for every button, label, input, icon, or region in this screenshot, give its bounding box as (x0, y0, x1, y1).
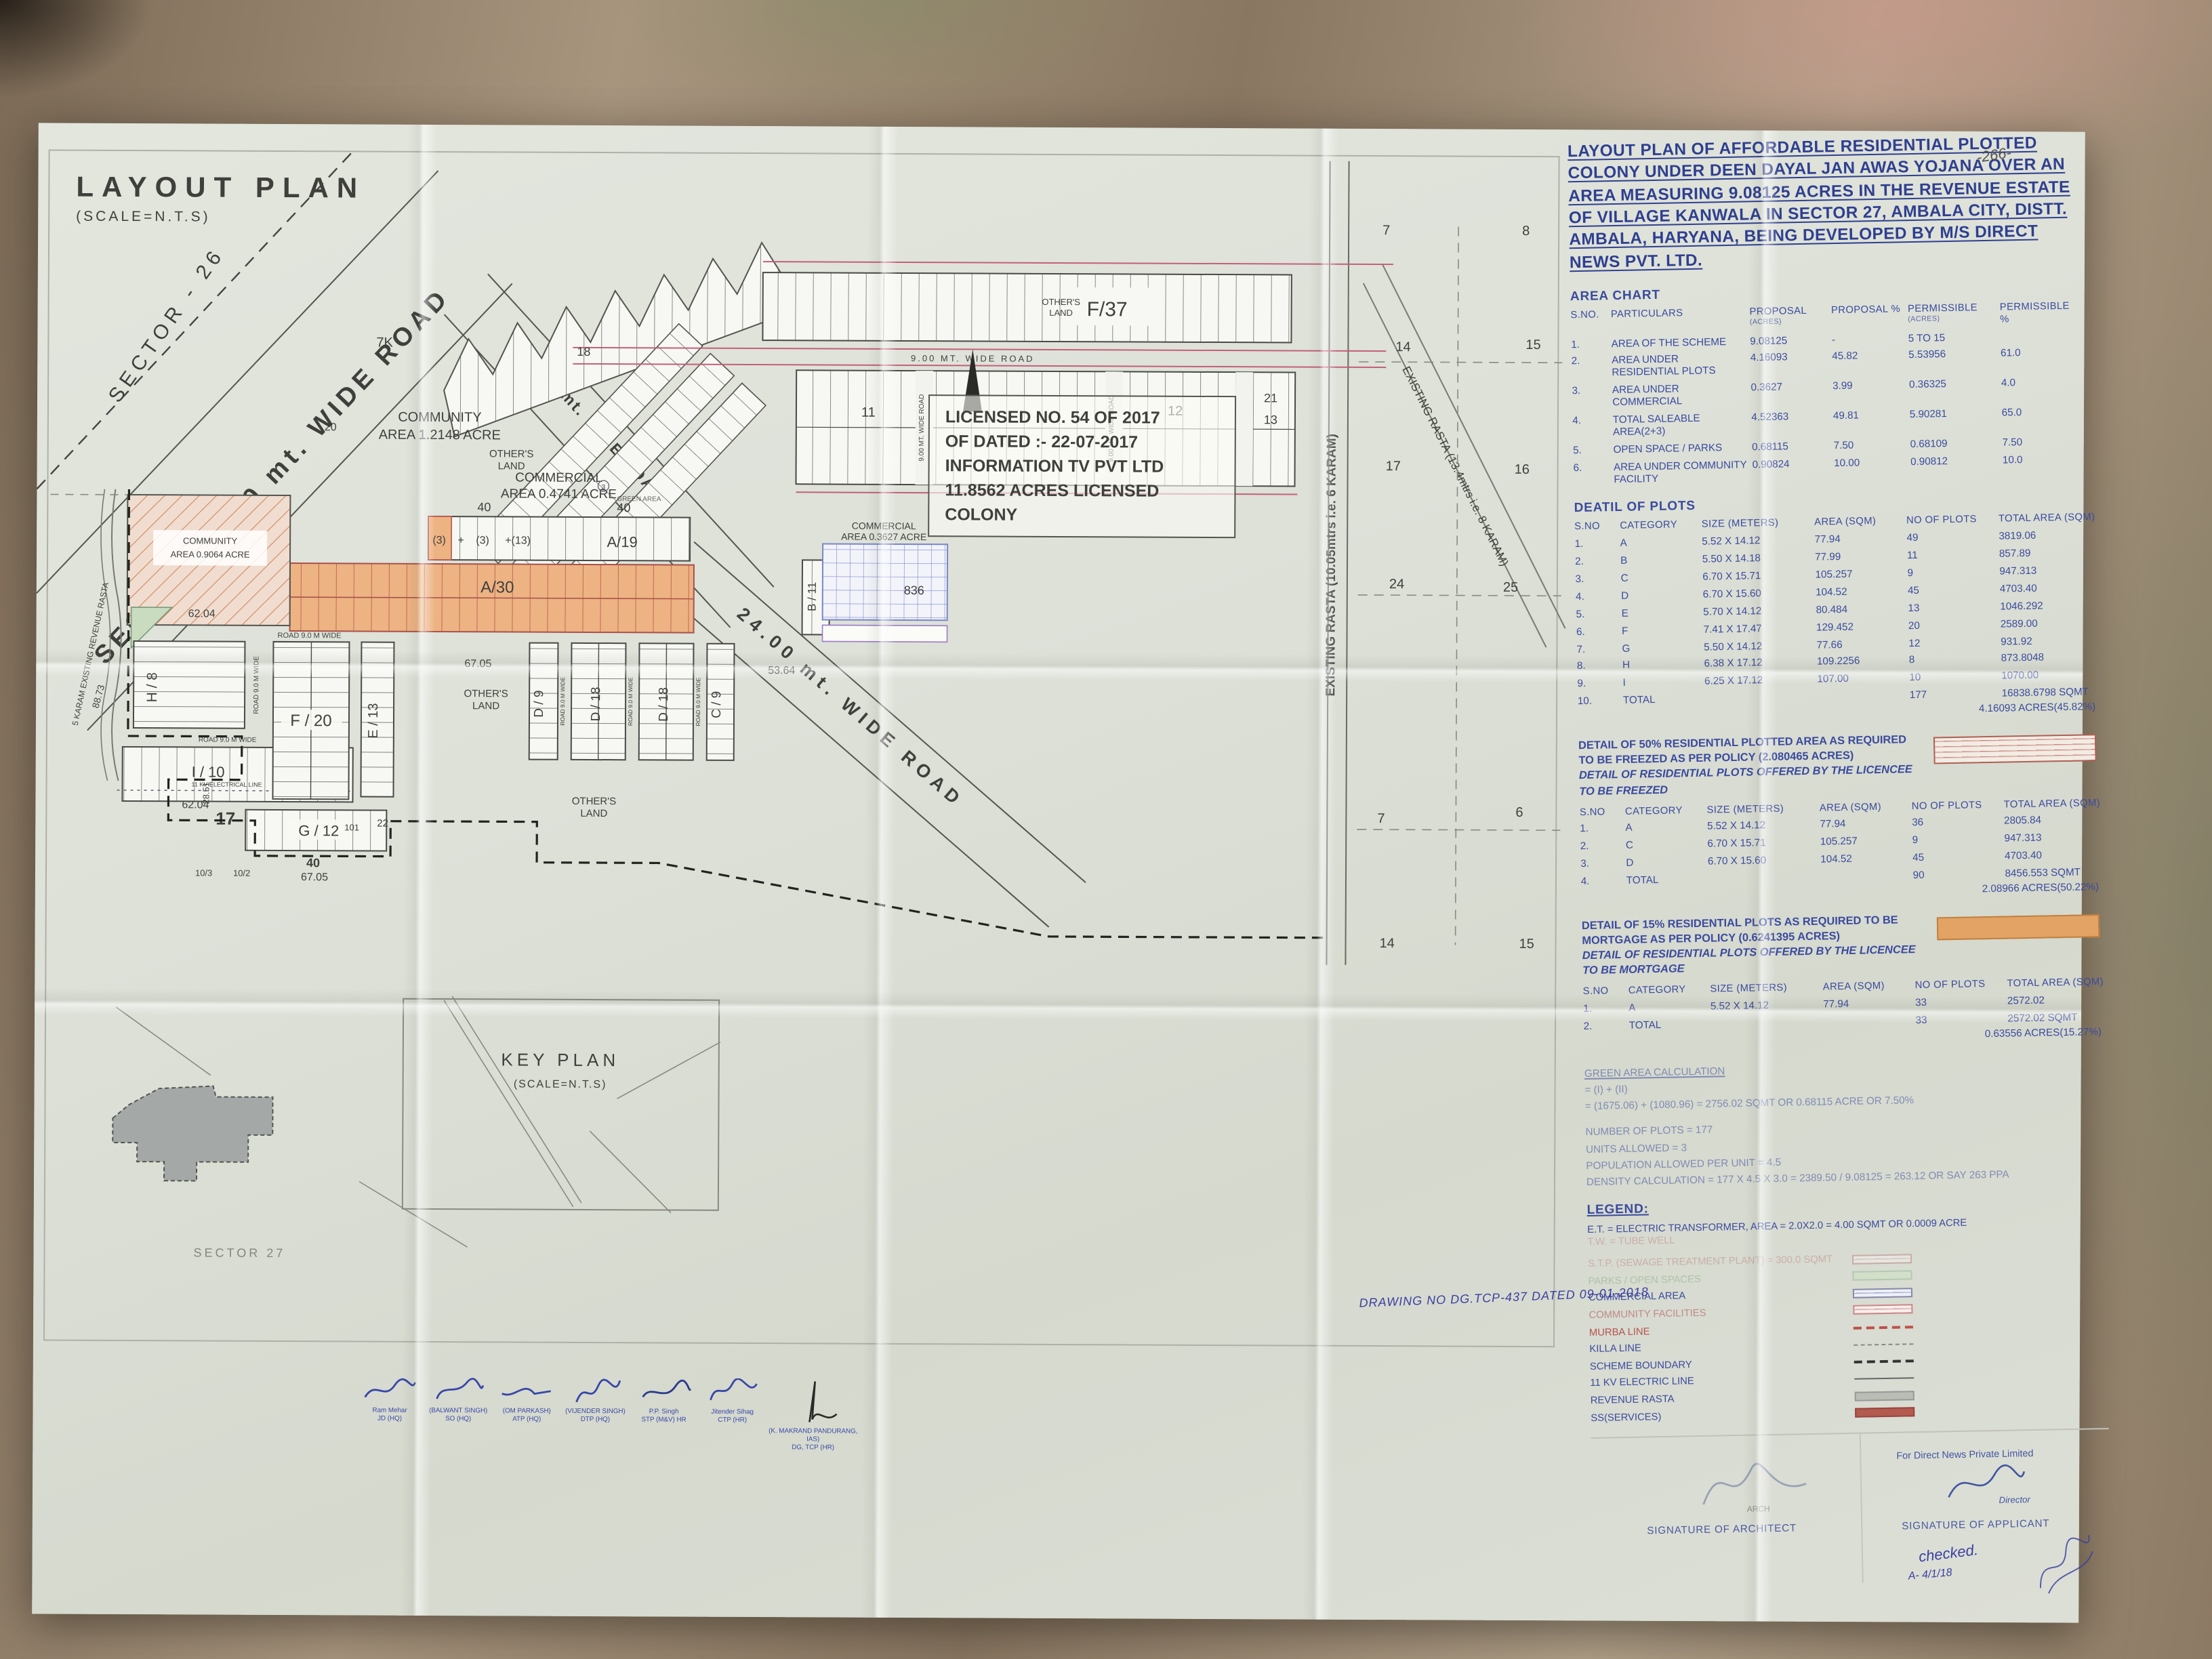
block-f37 (762, 272, 1291, 342)
services-swatch (1855, 1408, 1914, 1418)
stamp-dept: CTP (HR) (698, 1418, 766, 1427)
cell: C (1621, 571, 1699, 585)
stamp-name: (BALWANT SINGH) (424, 1408, 493, 1417)
cell: 36 (1912, 816, 2000, 829)
svg-text:21: 21 (1264, 391, 1277, 405)
mortgage-orange-swatch (1937, 914, 2100, 940)
cell: 4703.40 (2005, 849, 2103, 863)
block-f37-label: F/37 (1087, 298, 1128, 321)
extra-scribble (2017, 1522, 2113, 1604)
stamp: (BALWANT SINGH) SO (HQ) (424, 1377, 493, 1452)
stamp-signature (497, 1377, 556, 1404)
cell: 20 (1908, 619, 1996, 632)
date-note: A- 4/1/18 (1908, 1566, 1952, 1582)
cell: 77.94 (1820, 818, 1908, 832)
col-header: PROPOSAL % (1831, 304, 1904, 316)
cell: AREA UNDER COMMUNITY FACILITY (1614, 460, 1748, 487)
block-d9-label: D / 9 (532, 691, 546, 718)
cell: 1. (1574, 538, 1616, 551)
dim: 17 (216, 808, 235, 829)
legend-list: S.T.P. (SEWAGE TREATMENT PLANT) = 300.0 … (1588, 1249, 2108, 1424)
stamp: Jitender Sihag CTP (HR) (698, 1378, 767, 1454)
cell: TOTAL SALEABLE AREA(2+3) (1613, 413, 1748, 439)
key-plan-scale: (SCALE=N.T.S) (514, 1078, 607, 1090)
others-land-label: OTHER'S (1042, 297, 1080, 307)
mortgage-section: DETAIL OF 15% RESIDENTIAL PLOTS AS REQUI… (1582, 909, 2100, 978)
cell: 1. (1571, 338, 1607, 351)
svg-text:16: 16 (1515, 462, 1530, 477)
cell: 5.90281 (1910, 408, 1998, 422)
legend-item: KILLA LINE (1589, 1334, 2107, 1355)
legend-label: KILLA LINE (1589, 1339, 1853, 1355)
stamp-dept: DTP (HQ) (561, 1417, 630, 1426)
col-header: NO OF PLOTS (1915, 979, 2003, 992)
col-header: NO OF PLOTS (1912, 799, 2000, 813)
cell: 5.53956 (1908, 349, 1996, 363)
parks-swatch (1852, 1271, 1912, 1282)
block-b11-label: B / 11 (806, 582, 819, 611)
block-g12-label: G / 12 (298, 822, 339, 839)
cell: C (1626, 839, 1704, 853)
stamp-signature (634, 1378, 694, 1405)
stamp-signature (703, 1378, 762, 1406)
svg-text:INFORMATION TV PVT LTD: INFORMATION TV PVT LTD (945, 456, 1164, 476)
dim: 40 (306, 856, 320, 869)
stamp-name: Jitender Sihag (698, 1410, 766, 1418)
stamp-dept: ATP (HQ) (493, 1417, 561, 1426)
legend-item: SS(SERVICES) (1591, 1403, 2108, 1423)
community-swatch (1853, 1305, 1912, 1315)
col-header: CATEGORY (1620, 519, 1698, 533)
num-836: 836 (904, 583, 924, 597)
cell: 947.313 (2004, 832, 2102, 846)
cell: B (1620, 554, 1698, 567)
dim: 28.51 (201, 782, 211, 804)
legend-label: COMMUNITY FACILITIES (1589, 1305, 1853, 1321)
cell: 2805.84 (2004, 815, 2102, 829)
cell: 4. (1572, 415, 1609, 428)
cell: 2. (1584, 1021, 1625, 1033)
col-header: NO OF PLOTS (1906, 514, 1994, 527)
parcel-num: 18 (577, 345, 590, 359)
road-red-line (573, 364, 1386, 367)
cell: 3. (1575, 573, 1616, 586)
architect-label: SIGNATURE OF ARCHITECT (1647, 1521, 1797, 1536)
cell: 105.257 (1816, 568, 1904, 581)
director-label: Director (1999, 1496, 2030, 1506)
legend-label: REVENUE RASTA (1591, 1391, 1855, 1406)
applicant-company: For Direct News Private Limited (1896, 1447, 2033, 1462)
stamp-dept: STP (M&V) HR (630, 1418, 698, 1427)
key-plan-site-shape (112, 1086, 273, 1181)
legend-item: 11 KV ELECTRIC LINE (1590, 1369, 2108, 1389)
cell: AREA OF THE SCHEME (1612, 336, 1746, 351)
legend-label: SCHEME BOUNDARY (1590, 1357, 1854, 1372)
electric-swatch (1854, 1377, 1914, 1380)
block-d18-label: D / 18 (657, 687, 671, 722)
dim: 10/3 (195, 867, 212, 878)
col-header: TOTAL AREA (SQM) (2007, 977, 2105, 991)
killa-line-swatch (1853, 1343, 1913, 1346)
svg-text:13: 13 (1264, 413, 1277, 426)
freeze-section: DETAIL OF 50% RESIDENTIAL PLOTTED AREA A… (1578, 729, 2097, 798)
col-header: S.NO (1580, 806, 1621, 819)
stamp-name: (OM PARKASH) (493, 1409, 561, 1418)
road-label: ROAD 9.0 M WIDE (277, 632, 341, 640)
cell: 3. (1572, 386, 1608, 398)
dim: 22 (377, 818, 388, 829)
rasta-8karam-label: EXISTING RASTA (13.4mtrs i.e. 8 KARAM) (1399, 365, 1511, 569)
cell: 857.89 (1999, 547, 2097, 561)
cell: 10.0 (2003, 454, 2081, 468)
stamp: (VIJENDER SINGH) DTP (HQ) (561, 1378, 630, 1453)
cell: 49 (1906, 531, 1994, 544)
cell: 8456.553 SQMT (2005, 867, 2103, 881)
block-c9-label: C / 9 (710, 691, 724, 718)
cell: 4703.40 (2000, 581, 2098, 596)
checked-note: checked. (1918, 1542, 1979, 1566)
svg-text:7: 7 (1382, 223, 1390, 238)
legend-item: SCHEME BOUNDARY (1590, 1352, 2108, 1372)
cell: 7. (1576, 643, 1618, 656)
legend-label: 11 KV ELECTRIC LINE (1590, 1374, 1854, 1389)
plan-scale: (SCALE=N.T.S) (76, 209, 211, 225)
title-line: NEWS PVT. LTD. (1570, 250, 1703, 272)
cell: 7.50 (1834, 440, 1906, 453)
block-a19 (428, 516, 690, 561)
cell: 2589.00 (2001, 617, 2099, 631)
legend-heading: LEGEND: (1586, 1193, 2104, 1218)
stamp-name: P.P. Singh (630, 1409, 698, 1418)
col-header: PERMISSIBLE(ACRES) (1908, 302, 1996, 325)
col-header: TOTAL AREA (SQM) (1999, 512, 2097, 525)
road-gap (1235, 372, 1253, 486)
legend-item: MURBA LINE (1589, 1317, 2107, 1338)
svg-text:15: 15 (1519, 937, 1534, 951)
dim: 101 (344, 822, 359, 832)
cell: 10. (1578, 696, 1619, 709)
cell: F (1622, 624, 1700, 638)
svg-text:14: 14 (1395, 340, 1410, 354)
cell: 12 (1908, 636, 1996, 650)
cell: 2. (1575, 556, 1616, 569)
col-header: CATEGORY (1625, 804, 1703, 818)
cell: A (1625, 821, 1703, 835)
cell: AREA UNDER COMMERCIAL (1612, 383, 1747, 409)
col-header: PERMISSIBLE % (2000, 301, 2078, 326)
community-area2-label: AREA 0.9064 ACRE (170, 549, 249, 560)
stp-swatch (1852, 1253, 1912, 1264)
others-land-label: LAND (1049, 308, 1073, 318)
block-d18-label: D / 18 (589, 687, 603, 722)
block-f20-label: F / 20 (290, 712, 331, 730)
cell: 13 (1908, 601, 1996, 615)
title-line: AMBALA, HARYANA, BEING DEVELOPED BY M/S … (1569, 222, 2038, 249)
key-plan-sector27: SECTOR 27 (193, 1246, 285, 1260)
cell: 947.313 (1999, 564, 2097, 578)
cell: 61.0 (2001, 347, 2078, 361)
cell-label: (3) (476, 535, 489, 546)
cell: 45 (1912, 851, 2001, 865)
cell: 3. (1580, 858, 1622, 871)
stamp-dept: SO (HQ) (424, 1416, 493, 1425)
cell: 5. (1573, 445, 1610, 458)
cell: TOTAL (1626, 874, 1704, 888)
cell (2000, 330, 2078, 331)
block-e13-label: E / 13 (366, 703, 381, 738)
cell: 6. (1573, 463, 1610, 476)
cell: 177 (1910, 689, 1998, 703)
photo-stage: LAYOUT PLAN (SCALE=N.T.S) SECTOR - 26 SE… (0, 0, 2212, 1659)
key-plan-box (403, 999, 719, 1210)
commercial-area-label: COMMERCIAL (515, 470, 602, 485)
cell: 0.36325 (1909, 378, 1997, 392)
stamp-name: (K. MAKRAND PANDURANG, IAS) (766, 1429, 859, 1446)
cell: 1046.292 (2000, 599, 2098, 613)
cell: 16838.6798 SQMT (2002, 687, 2100, 701)
cell: 104.52 (1820, 853, 1908, 867)
cell: 0.90812 (1910, 455, 1999, 469)
layout-plan-sheet: LAYOUT PLAN (SCALE=N.T.S) SECTOR - 26 SE… (32, 123, 2085, 1622)
col-header: S.NO. (1570, 309, 1607, 321)
cell: 1. (1580, 823, 1621, 836)
cell-label: + (457, 535, 464, 546)
others-land-label: LAND (472, 700, 499, 712)
cell: 77.99 (1815, 550, 1903, 564)
col-header: PARTICULARS (1611, 307, 1746, 321)
block-a19-label: A/19 (607, 533, 637, 550)
dim: 67.05 (301, 872, 328, 883)
signature-area: ARCH For Direct News Private Limited Dir… (1591, 1428, 2112, 1642)
road-label: ROAD 9.0 M WIDE (199, 736, 257, 743)
legend-item: S.T.P. (SEWAGE TREATMENT PLANT) = 300.0 … (1588, 1249, 2106, 1269)
site-plan-drawing: LAYOUT PLAN (SCALE=N.T.S) SECTOR - 26 SE… (33, 139, 1570, 1366)
cell: 5. (1576, 608, 1617, 621)
parcel-num: 20 (325, 422, 337, 433)
road-label: ROAD 9.0 M WIDE (559, 677, 566, 726)
col-header: AREA (SQM) (1814, 515, 1902, 529)
rasta-swatch (1855, 1391, 1914, 1401)
dim: 10/2 (233, 868, 250, 878)
dim: 62.04 (188, 608, 216, 619)
svg-text:17: 17 (1386, 459, 1401, 474)
cell: 9 (1912, 834, 2001, 847)
green-area-marker-num: 3 (602, 484, 606, 491)
block-h8-label: H / 8 (144, 672, 160, 702)
cell: 4. (1581, 876, 1622, 888)
svg-text:8: 8 (1522, 224, 1530, 239)
rasta-8karam-line (1381, 264, 1567, 628)
parcel-num: 7K (376, 335, 393, 350)
cell: - (1832, 333, 1904, 346)
cell: 4.0 (2001, 377, 2079, 390)
col-header: AREA (SQM) (1823, 981, 1911, 994)
cell: OPEN SPACE / PARKS (1613, 443, 1748, 457)
community-area2-label: COMMUNITY (183, 535, 238, 546)
cell: 6. (1576, 626, 1618, 638)
cell: 5 TO 15 (1908, 331, 1996, 345)
svg-text:15: 15 (1525, 337, 1540, 352)
svg-text:LICENSED NO. 54 OF 2017: LICENSED NO. 54 OF 2017 (945, 407, 1160, 427)
svg-text:COLONY: COLONY (945, 505, 1017, 524)
col-header: S.NO (1574, 520, 1616, 533)
others-land-label: OTHER'S (489, 448, 533, 459)
cell: 45.82 (1832, 350, 1904, 364)
cell: TOTAL (1623, 695, 1701, 708)
signature-divider (1860, 1433, 1864, 1582)
svg-text:11.8562 ACRES LICENSED: 11.8562 ACRES LICENSED (945, 480, 1159, 500)
cell: 2. (1572, 356, 1608, 369)
stamp-signature (428, 1377, 488, 1404)
legend-item: REVENUE RASTA (1591, 1386, 2108, 1406)
legend-label: S.T.P. (SEWAGE TREATMENT PLANT) = 300.0 … (1588, 1254, 1852, 1269)
green-area-calc: GREEN AREA CALCULATION = (I) + (II) = (1… (1584, 1057, 2104, 1191)
cell: 3.99 (1832, 380, 1905, 394)
others-land-label: OTHER'S (572, 796, 616, 807)
svg-text:7: 7 (1377, 811, 1385, 826)
road-label: ROAD 9.0 M WIDE (627, 677, 634, 726)
svg-text:OF DATED :- 22-07-2017: OF DATED :- 22-07-2017 (945, 432, 1138, 451)
cell: 65.0 (2002, 407, 2080, 420)
cell: A (1620, 536, 1698, 550)
applicant-label: SIGNATURE OF APPLICANT (1902, 1517, 2049, 1532)
stamp-signature (566, 1378, 626, 1405)
cell: 45 (1908, 583, 1996, 597)
legend-label: MURBA LINE (1589, 1322, 1853, 1338)
commercial-swatch (1853, 1288, 1912, 1298)
boundary-swatch (1854, 1359, 1914, 1364)
svg-text:14: 14 (1380, 936, 1395, 951)
paper-fold (861, 127, 898, 1618)
col-header: AREA (SQM) (1820, 800, 1908, 814)
block-i10-label: I / 10 (192, 763, 225, 780)
others-land-label: OTHER'S (464, 688, 508, 699)
legend-label: SS(SERVICES) (1591, 1408, 1855, 1423)
cell: AREA UNDER RESIDENTIAL PLOTS (1612, 353, 1746, 380)
cell: 105.257 (1820, 836, 1908, 849)
stamp-signature-black (779, 1378, 847, 1425)
svg-text:25: 25 (1503, 580, 1518, 595)
stamp: (OM PARKASH) ATP (HQ) (493, 1377, 562, 1452)
cell: 10.00 (1834, 457, 1906, 470)
cell: 77.66 (1816, 638, 1904, 651)
paper-fold (1302, 129, 1338, 1620)
freeze-hatch-swatch (1933, 735, 2097, 764)
plan-title: LAYOUT PLAN (76, 171, 365, 204)
dim: 40 (617, 501, 630, 514)
key-plan-title: KEY PLAN (501, 1049, 619, 1070)
cell: 104.52 (1816, 586, 1904, 599)
stamp: P.P. Singh STP (M&V) HR (630, 1378, 699, 1453)
svg-text:24: 24 (1389, 577, 1404, 592)
road-label: ROAD 9.0 M WIDE (695, 677, 701, 726)
others-land-label: LAND (580, 808, 607, 819)
cell: 129.452 (1816, 620, 1904, 634)
cell: 80.484 (1816, 602, 1904, 616)
cell: 4. (1576, 590, 1617, 603)
cell: 2. (1580, 841, 1622, 854)
stamp-name: (VIJENDER SINGH) (561, 1409, 630, 1418)
cell: 90 (1913, 869, 2001, 882)
sector-26-label: SECTOR - 26 (104, 243, 229, 407)
cell: 49.81 (1833, 410, 1906, 424)
road-9-gap-label: 9.00 MT. WIDE ROAD (918, 394, 926, 462)
cell: 9 (1907, 566, 1995, 579)
cell: G (1622, 642, 1700, 655)
freeze-table: S.NO CATEGORY SIZE (METERS) AREA (SQM) N… (1580, 797, 2099, 888)
cell: 0.68109 (1910, 438, 1999, 451)
murba-line-swatch (1853, 1325, 1913, 1329)
legend-item: COMMUNITY FACILITIES (1589, 1300, 2106, 1321)
block-a30-label: A/30 (480, 578, 514, 596)
community-area-label: AREA 1.2148 ACRE (379, 428, 501, 443)
cell: D (1626, 857, 1704, 870)
col-header: TOTAL AREA (SQM) (2004, 797, 2102, 811)
killa-numbers: 78 1415 1716 2425 76 1415 (1377, 223, 1542, 951)
cell: D (1621, 589, 1699, 602)
cell: 77.94 (1815, 533, 1903, 546)
stamp-dept: DG, TCP (HR) (766, 1446, 859, 1454)
road-red-line (763, 262, 1393, 264)
svg-text:6: 6 (1515, 805, 1523, 820)
cell: 7.50 (2002, 436, 2080, 450)
cell-label: +(13) (505, 535, 531, 546)
cell: 931.92 (2001, 634, 2099, 649)
stamp: (K. MAKRAND PANDURANG, IAS) DG, TCP (HR) (766, 1378, 860, 1454)
killa-grid (1357, 226, 1563, 945)
dim: 40 (477, 500, 491, 514)
cell: 11 (1907, 548, 1995, 562)
cell: 3819.06 (1999, 529, 2097, 544)
cell: E (1621, 607, 1699, 620)
area-chart-table: S.NO. PARTICULARS PROPOSAL(ACRES) PROPOS… (1570, 300, 2091, 487)
rasta-6karam-line (1345, 161, 1349, 965)
info-panel: LAYOUT PLAN OF AFFORDABLE RESIDENTIAL PL… (1568, 131, 2112, 1641)
